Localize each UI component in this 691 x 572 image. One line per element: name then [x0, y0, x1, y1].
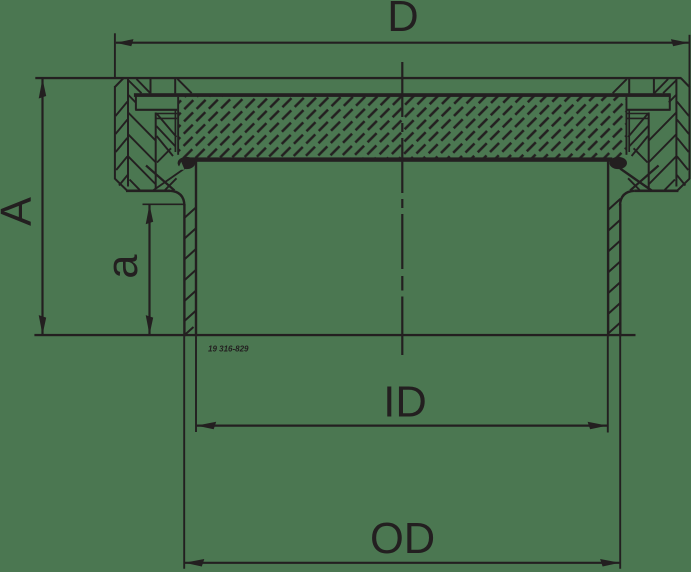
svg-text:19 316-829: 19 316-829 — [208, 345, 249, 354]
svg-text:A: A — [0, 197, 41, 226]
svg-text:a: a — [99, 254, 147, 279]
svg-text:OD: OD — [370, 515, 435, 563]
svg-text:ID: ID — [383, 379, 427, 427]
svg-text:D: D — [387, 0, 418, 41]
